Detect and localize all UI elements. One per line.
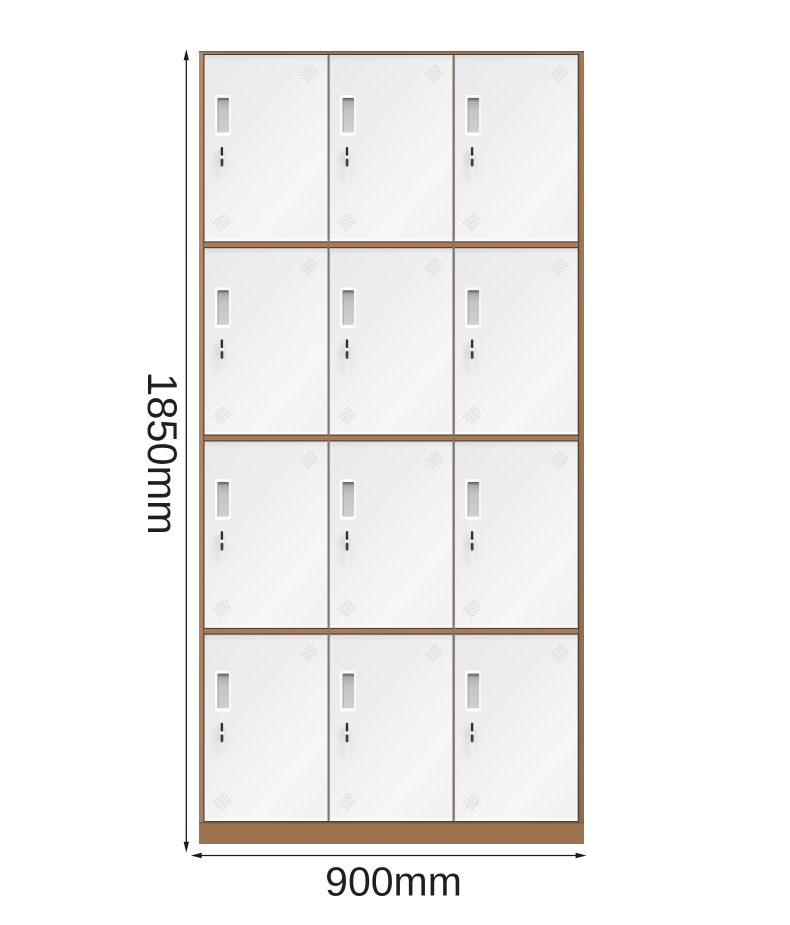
svg-text:1850mm: 1850mm [139, 373, 186, 534]
svg-text:900mm: 900mm [325, 859, 462, 905]
